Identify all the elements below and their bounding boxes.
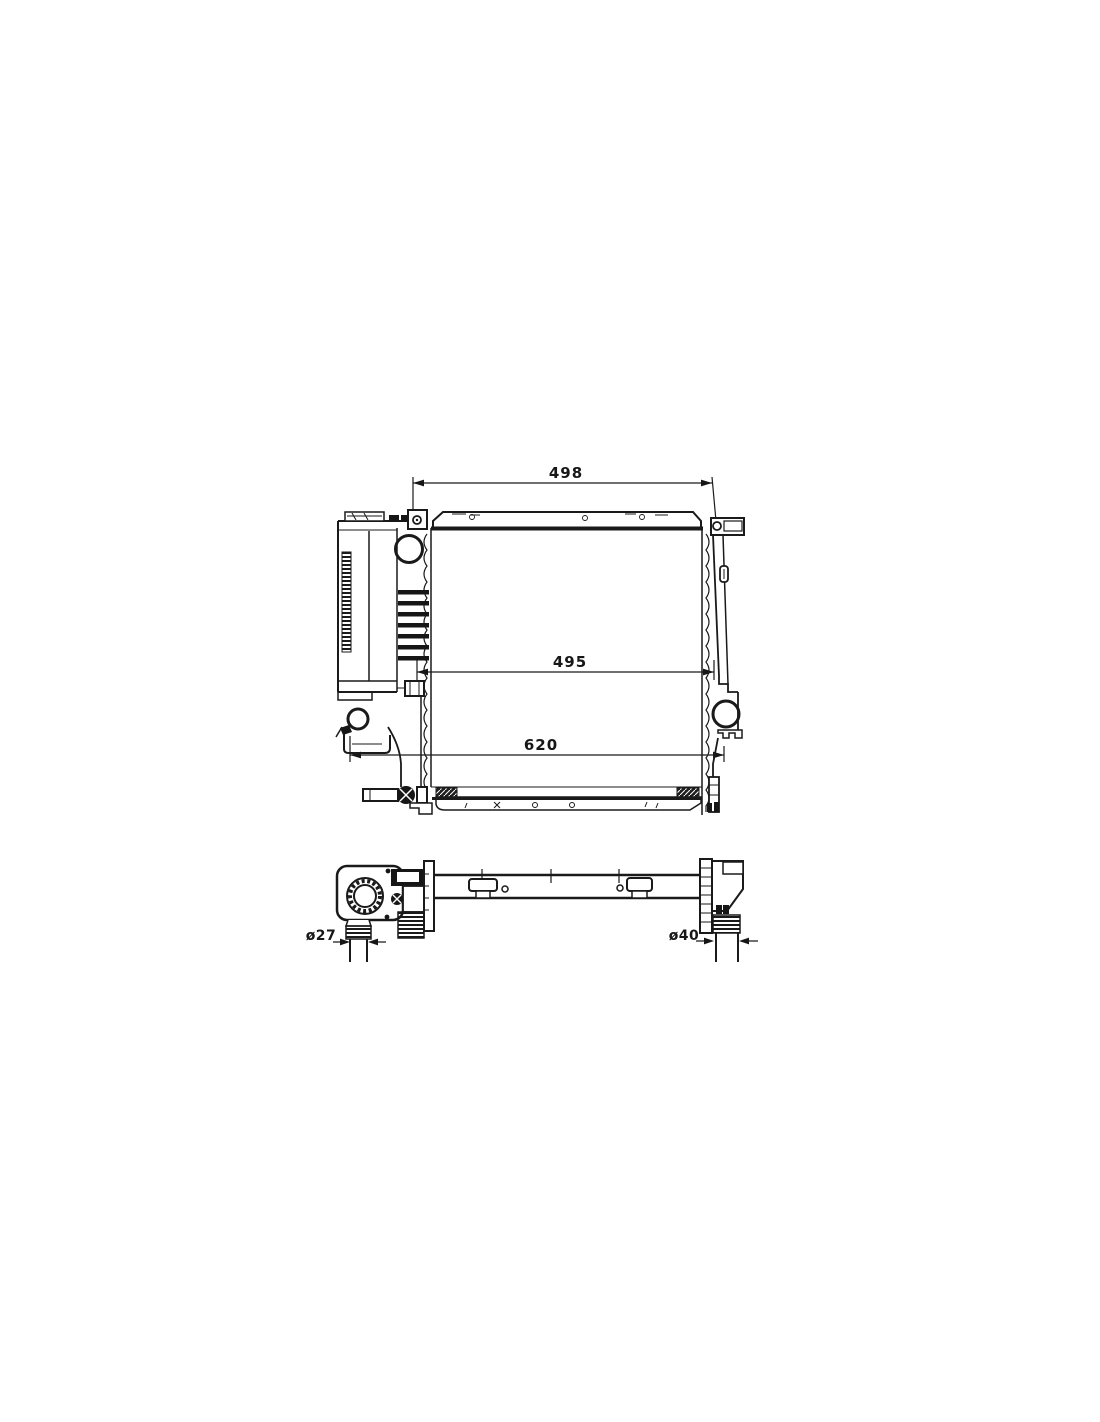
drain-assembly — [363, 786, 432, 814]
dimension-label-o27: ø27 — [306, 928, 337, 944]
outlet-pipe — [716, 933, 738, 962]
outlet-port — [713, 701, 739, 727]
lower-bracket — [344, 733, 390, 753]
inlet-pipe — [350, 939, 367, 962]
side-hose-ribs — [398, 912, 424, 938]
top-view: ø27 ø40 — [306, 859, 758, 962]
dimension-label-498: 498 — [549, 464, 583, 482]
outlet-boss — [713, 676, 742, 785]
outlet-hose-ribs — [713, 915, 740, 933]
mount-clip-2 — [617, 878, 652, 898]
mount-clip-1 — [469, 879, 508, 898]
left-flange — [424, 861, 434, 931]
filler-neck — [396, 536, 423, 563]
right-foot — [707, 777, 719, 812]
inlet-housing — [337, 866, 426, 962]
dimension-overall-width: 620 — [350, 736, 724, 762]
right-tank — [707, 518, 744, 812]
outlet-housing — [700, 859, 743, 962]
radiator-technical-drawing: 498 495 620 — [0, 0, 1100, 1422]
inlet-neck — [346, 920, 371, 926]
core-profile — [434, 869, 700, 898]
drawing-page: 498 495 620 — [0, 0, 1100, 1422]
top-tank — [431, 512, 703, 529]
bottom-tank — [432, 788, 702, 810]
core-left-scallops — [424, 534, 427, 790]
inlet-hose-ribs — [346, 926, 371, 939]
tank-rib-strip — [342, 552, 351, 652]
dimension-label-620: 620 — [524, 736, 558, 754]
left-mounting-pin — [408, 510, 427, 529]
mid-bracket — [397, 681, 424, 696]
right-mounting-bracket — [711, 518, 744, 535]
front-view: 498 495 620 — [336, 464, 744, 815]
screw-head — [391, 893, 403, 905]
dimension-label-495: 495 — [553, 653, 587, 671]
side-clip — [720, 566, 728, 582]
hose-port — [336, 709, 368, 737]
dimension-core-width: 495 — [417, 653, 714, 680]
dimension-label-o40: ø40 — [669, 928, 700, 944]
